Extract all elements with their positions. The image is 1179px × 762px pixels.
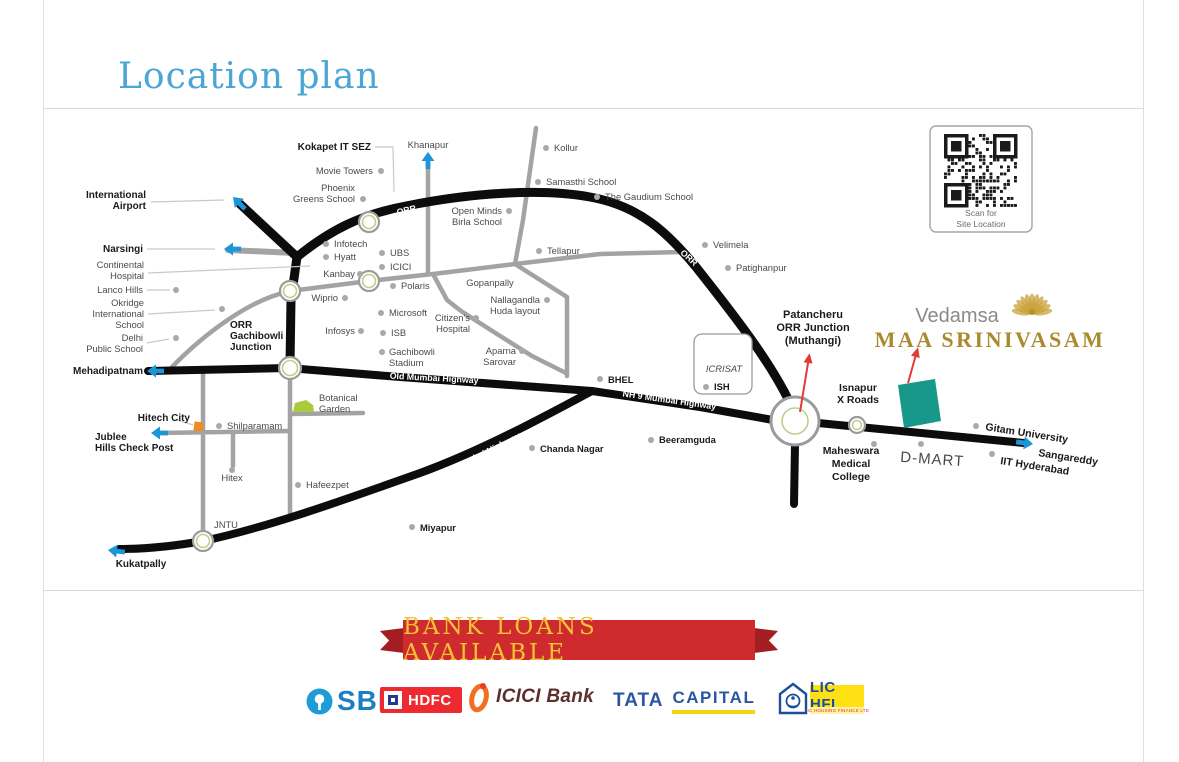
leader-line bbox=[151, 200, 224, 202]
qr-module bbox=[955, 162, 958, 165]
place-label-isnapur: IsnapurX Roads bbox=[837, 382, 879, 406]
tata-capital-label: CAPITAL bbox=[672, 688, 755, 708]
place-dot-shilparamam bbox=[216, 423, 222, 429]
place-label-movie-towers: Movie Towers bbox=[316, 165, 373, 176]
place-label-line: Kokapet IT SEZ bbox=[298, 142, 371, 153]
hdfc-emblem-icon bbox=[384, 691, 402, 709]
qr-module bbox=[990, 190, 993, 193]
place-dot-nallagandla bbox=[544, 297, 550, 303]
qr-module bbox=[993, 159, 996, 162]
place-label-line: Gopanpally bbox=[466, 277, 514, 288]
qr-module bbox=[986, 166, 989, 169]
qr-finder-core bbox=[951, 190, 962, 201]
qr-module bbox=[983, 187, 986, 190]
place-label-beeramguda: Beeramguda bbox=[659, 434, 717, 445]
place-label-international: InternationalAirport bbox=[86, 190, 147, 212]
place-label-shilparamam: Shilparamam bbox=[227, 420, 282, 431]
place-label-d-mart: D-MART bbox=[900, 449, 965, 470]
place-label-line: Junction bbox=[230, 342, 272, 353]
jublee-hills-arrow bbox=[151, 427, 168, 440]
qr-module bbox=[986, 204, 989, 207]
place-label-line: College bbox=[832, 471, 870, 483]
place-dot-gachibowli bbox=[379, 349, 385, 355]
qr-module bbox=[972, 166, 975, 169]
qr-module bbox=[983, 138, 986, 141]
qr-module bbox=[962, 180, 965, 183]
place-label-line: Hafeezpet bbox=[306, 479, 349, 490]
place-label-infosys: Infosys bbox=[325, 325, 355, 336]
qr-module bbox=[972, 176, 975, 179]
place-label-line: Mehadipatnam bbox=[73, 366, 143, 377]
place-label-line: The Gaudium School bbox=[605, 191, 693, 202]
patancheru-junction-pointer-head bbox=[804, 353, 813, 364]
qr-module bbox=[969, 162, 972, 165]
place-dot-isb bbox=[380, 330, 386, 336]
qr-module bbox=[969, 197, 972, 200]
place-label-line: Lanco Hills bbox=[97, 284, 143, 295]
qr-module bbox=[1000, 197, 1003, 200]
place-label-line: UBS bbox=[390, 247, 409, 258]
qr-module bbox=[969, 194, 972, 197]
icici-swirl-icon bbox=[466, 681, 492, 713]
qr-module bbox=[958, 159, 961, 162]
qr-module bbox=[1000, 166, 1003, 169]
qr-module bbox=[979, 176, 982, 179]
hdfc-label: HDFC bbox=[408, 692, 452, 709]
place-label-line: Hospital bbox=[110, 270, 144, 281]
qr-module bbox=[990, 173, 993, 176]
place-label-icici: ICICI bbox=[390, 261, 411, 272]
place-label-line: Microsoft bbox=[389, 307, 427, 318]
place-dot-samasthi-school bbox=[535, 179, 541, 185]
qr-module bbox=[986, 194, 989, 197]
place-label-line: Airport bbox=[113, 201, 147, 212]
place-label-line: Okridge bbox=[111, 297, 144, 308]
place-label-tellapur: Tellapur bbox=[547, 245, 580, 256]
qr-module bbox=[993, 204, 996, 207]
qr-module bbox=[972, 155, 975, 158]
place-label-open-minds: Open MindsBirla School bbox=[451, 205, 502, 227]
qr-module bbox=[969, 169, 972, 172]
qr-module bbox=[972, 138, 975, 141]
qr-module bbox=[976, 204, 979, 207]
qr-module bbox=[1004, 173, 1007, 176]
qr-module bbox=[1007, 204, 1010, 207]
qr-module bbox=[990, 141, 993, 144]
qr-module bbox=[986, 169, 989, 172]
qr-finder-core bbox=[1000, 141, 1011, 152]
place-label-jntu: JNTU bbox=[214, 519, 238, 530]
place-label-line: Sarovar bbox=[483, 356, 516, 367]
qr-module bbox=[1014, 166, 1017, 169]
place-label-wiprio: Wiprio bbox=[311, 292, 338, 303]
qr-module bbox=[983, 197, 986, 200]
qr-module bbox=[969, 183, 972, 186]
place-label-line: X Roads bbox=[837, 394, 879, 406]
qr-module bbox=[976, 152, 979, 155]
place-dot-aparna bbox=[519, 348, 525, 354]
place-label-chanda-nagar: Chanda Nagar bbox=[540, 443, 604, 454]
place-label-line: ICRISAT bbox=[706, 363, 744, 374]
qr-module bbox=[997, 159, 1000, 162]
place-label-polaris: Polaris bbox=[401, 280, 430, 291]
place-dot-kanbay bbox=[357, 271, 363, 277]
qr-module bbox=[1014, 180, 1017, 183]
place-label-line: Jublee bbox=[95, 432, 127, 443]
bank-loans-ribbon-text: BANK LOANS AVAILABLE bbox=[403, 614, 755, 666]
place-label-line: Greens School bbox=[293, 193, 355, 204]
place-label-line: Infotech bbox=[334, 238, 367, 249]
qr-module bbox=[983, 194, 986, 197]
place-label-maheswara: MaheswaraMedicalCollege bbox=[823, 445, 880, 483]
place-label-microsoft: Microsoft bbox=[389, 307, 427, 318]
qr-module bbox=[979, 159, 982, 162]
narsingi-arrow bbox=[224, 243, 241, 256]
place-label-line: Shilparamam bbox=[227, 420, 282, 431]
qr-module bbox=[951, 162, 954, 165]
qr-module bbox=[979, 201, 982, 204]
leader-line bbox=[148, 310, 215, 314]
qr-module bbox=[944, 173, 947, 176]
place-dot-open-minds bbox=[506, 208, 512, 214]
place-dot-polaris bbox=[390, 283, 396, 289]
place-label-line: Huda layout bbox=[490, 305, 540, 316]
qr-module bbox=[976, 201, 979, 204]
qr-module bbox=[979, 180, 982, 183]
qr-module bbox=[944, 176, 947, 179]
place-label-line: Hyatt bbox=[334, 251, 356, 262]
place-label-okridge: OkridgeInternationalSchool bbox=[92, 297, 144, 330]
qr-module bbox=[990, 197, 993, 200]
qr-module bbox=[990, 176, 993, 179]
place-label-line: Nallagandla bbox=[490, 294, 540, 305]
qr-module bbox=[1000, 190, 1003, 193]
place-label-line: Polaris bbox=[401, 280, 430, 291]
place-label-line: Hospital bbox=[436, 323, 470, 334]
qr-module bbox=[948, 173, 951, 176]
qr-module bbox=[976, 187, 979, 190]
place-dot-bhel bbox=[597, 376, 603, 382]
place-label-line: Gachibowli bbox=[389, 346, 435, 357]
qr-module bbox=[993, 187, 996, 190]
place-label-line: Gachibowli bbox=[230, 331, 284, 342]
qr-module bbox=[979, 166, 982, 169]
qr-finder-core bbox=[951, 141, 962, 152]
qr-module bbox=[972, 169, 975, 172]
leader-line bbox=[147, 339, 169, 343]
place-label-line: D-MART bbox=[900, 449, 965, 470]
place-label-narsingi: Narsingi bbox=[103, 244, 143, 255]
road-old-mumbai-highway bbox=[148, 368, 592, 391]
qr-module bbox=[993, 197, 996, 200]
place-dot-d-mart bbox=[918, 441, 924, 447]
qr-module bbox=[983, 173, 986, 176]
place-label-phoenix: PhoenixGreens School bbox=[293, 182, 355, 204]
road-label-nh-9-mumbai-highway: NH 9 Mumbai Highway bbox=[433, 430, 522, 482]
place-label-line: Hitech City bbox=[138, 413, 191, 424]
road-patancheru-south-road bbox=[794, 445, 795, 504]
place-label-line: ORR Junction bbox=[776, 322, 850, 334]
place-label-line: Public School bbox=[86, 343, 143, 354]
place-label-botanical: BotanicalGarden bbox=[319, 392, 358, 414]
qr-module bbox=[965, 176, 968, 179]
place-label-line: Patighanpur bbox=[736, 262, 787, 273]
place-label-line: Narsingi bbox=[103, 244, 143, 255]
brand-name: Vedamsa bbox=[915, 305, 999, 327]
qr-module bbox=[958, 169, 961, 172]
place-label-line: ISB bbox=[391, 327, 406, 338]
place-dot-infotech bbox=[323, 241, 329, 247]
qr-module bbox=[979, 155, 982, 158]
qr-module bbox=[983, 159, 986, 162]
qr-module bbox=[962, 176, 965, 179]
place-label-line: School bbox=[115, 319, 144, 330]
place-label-isb: ISB bbox=[391, 327, 406, 338]
qr-module bbox=[965, 162, 968, 165]
qr-module bbox=[1007, 197, 1010, 200]
place-dot-the-gaudium-school bbox=[594, 194, 600, 200]
place-label-line: Medical bbox=[832, 458, 871, 470]
place-label-kokapet-it-sez: Kokapet IT SEZ bbox=[298, 142, 371, 153]
place-dot-kollur bbox=[543, 145, 549, 151]
qr-module bbox=[976, 183, 979, 186]
qr-caption-line: Site Location bbox=[956, 219, 1005, 229]
qr-module bbox=[997, 180, 1000, 183]
qr-module bbox=[986, 141, 989, 144]
qr-module bbox=[986, 180, 989, 183]
qr-module bbox=[1004, 204, 1007, 207]
place-label-aparna: AparnaSarovar bbox=[483, 345, 517, 367]
place-label-line: Hills Check Post bbox=[95, 443, 174, 454]
place-label-line: Botanical bbox=[319, 392, 358, 403]
icici-label: ICICI Bank bbox=[496, 686, 594, 708]
place-label-hitex: Hitex bbox=[221, 472, 243, 483]
bank-logo-icici: ICICI Bank bbox=[466, 681, 594, 713]
qr-module bbox=[1007, 180, 1010, 183]
qr-module bbox=[965, 169, 968, 172]
qr-module bbox=[993, 190, 996, 193]
qr-module bbox=[1004, 187, 1007, 190]
place-label-delhi: DelhiPublic School bbox=[86, 332, 143, 354]
place-label-line: Miyapur bbox=[420, 522, 456, 533]
qr-module bbox=[1011, 197, 1014, 200]
qr-module bbox=[990, 155, 993, 158]
hdfc-red-box: HDFC bbox=[380, 687, 462, 713]
place-dot-lanco-hills bbox=[173, 287, 179, 293]
project-name: MAA SRINIVASAM bbox=[875, 327, 1106, 352]
place-label-hyatt: Hyatt bbox=[334, 251, 356, 262]
place-dot-tellapur bbox=[536, 248, 542, 254]
qr-module bbox=[976, 190, 979, 193]
place-label-line: Khanapur bbox=[408, 139, 449, 150]
qr-module bbox=[979, 152, 982, 155]
place-dot-citizen-s bbox=[473, 315, 479, 321]
project-site-block bbox=[898, 379, 941, 428]
tata-capital-underline bbox=[672, 710, 755, 714]
place-label-patighanpur: Patighanpur bbox=[736, 262, 787, 273]
place-dot-velimela bbox=[702, 242, 708, 248]
place-label-the-gaudium-school: The Gaudium School bbox=[605, 191, 693, 202]
place-label-line: Kanbay bbox=[323, 268, 355, 279]
place-label-samasthi-school: Samasthi School bbox=[546, 176, 616, 187]
place-label-line: ISH bbox=[714, 381, 730, 392]
mehadipatnam-arrow bbox=[147, 365, 164, 378]
lic-house-icon bbox=[778, 682, 808, 716]
qr-module bbox=[969, 187, 972, 190]
place-label-line: Kukatpally bbox=[116, 559, 167, 570]
place-label-line: Tellapur bbox=[547, 245, 580, 256]
qr-module bbox=[969, 155, 972, 158]
qr-module bbox=[983, 155, 986, 158]
place-label-khanapur: Khanapur bbox=[408, 139, 449, 150]
place-label-line: Samasthi School bbox=[546, 176, 616, 187]
place-label-line: International bbox=[86, 190, 146, 201]
qr-module bbox=[969, 190, 972, 193]
place-dot-ubs bbox=[379, 250, 385, 256]
qr-module bbox=[986, 138, 989, 141]
place-label-line: Velimela bbox=[713, 239, 749, 250]
qr-module bbox=[990, 194, 993, 197]
qr-module bbox=[993, 201, 996, 204]
place-label-citizen-s: Citizen'sHospital bbox=[435, 312, 470, 334]
place-dot bbox=[871, 441, 877, 447]
place-label-miyapur: Miyapur bbox=[420, 522, 456, 533]
qr-module bbox=[1007, 166, 1010, 169]
qr-module bbox=[1007, 169, 1010, 172]
place-label-line: Chanda Nagar bbox=[540, 443, 604, 454]
lotus-center bbox=[1029, 309, 1035, 315]
place-label-velimela: Velimela bbox=[713, 239, 749, 250]
leader-line bbox=[375, 147, 394, 192]
qr-module bbox=[986, 197, 989, 200]
qr-caption-line: Scan for bbox=[965, 208, 997, 218]
place-label-line: Citizen's bbox=[435, 312, 470, 323]
place-label-icrisat: ICRISAT bbox=[706, 363, 744, 374]
qr-module bbox=[972, 145, 975, 148]
place-label-patancheru: PatancheruORR Junction(Muthangi) bbox=[776, 309, 850, 347]
place-label-line: Infosys bbox=[325, 325, 355, 336]
hitech-city-marker bbox=[193, 421, 203, 431]
place-label-line: Delhi bbox=[122, 332, 143, 343]
qr-module bbox=[990, 162, 993, 165]
place-label-infotech: Infotech bbox=[334, 238, 367, 249]
place-label-line: Patancheru bbox=[783, 309, 843, 321]
place-label-line: Maheswara bbox=[823, 445, 880, 457]
qr-module bbox=[986, 148, 989, 151]
bank-logo-sbi: SBI bbox=[306, 685, 387, 717]
qr-module bbox=[986, 190, 989, 193]
place-label-line: Kollur bbox=[554, 142, 578, 153]
place-dot-beeramguda bbox=[648, 437, 654, 443]
qr-module bbox=[951, 169, 954, 172]
lic-hfl-caption: LIC HOUSING FINANCE LTD bbox=[810, 707, 864, 714]
place-label-line: Stadium bbox=[389, 357, 424, 368]
botanical-garden-area bbox=[293, 400, 314, 412]
place-label-line: Continental bbox=[97, 259, 144, 270]
qr-module bbox=[976, 197, 979, 200]
qr-module bbox=[1011, 159, 1014, 162]
qr-module bbox=[969, 145, 972, 148]
bank-logo-tata-capital: TATA CAPITAL bbox=[613, 688, 755, 714]
qr-module bbox=[1004, 159, 1007, 162]
junction-circle bbox=[771, 397, 819, 445]
qr-module bbox=[1000, 173, 1003, 176]
place-label-line: Movie Towers bbox=[316, 165, 373, 176]
place-label-kukatpally: Kukatpally bbox=[116, 559, 167, 570]
lotus-icon bbox=[1011, 293, 1052, 316]
bank-logo-hdfc: HDFC bbox=[380, 687, 462, 713]
qr-module bbox=[962, 166, 965, 169]
place-dot-wiprio bbox=[342, 295, 348, 301]
place-dot-chanda-nagar bbox=[529, 445, 535, 451]
sbi-keyhole-icon bbox=[306, 688, 333, 715]
place-label-lanco-hills: Lanco Hills bbox=[97, 284, 143, 295]
place-dot-gitam-university bbox=[973, 423, 979, 429]
place-label-line: (Muthangi) bbox=[785, 335, 842, 347]
khanapur-arrow bbox=[422, 152, 435, 169]
place-label-orr: ORRGachibowliJunction bbox=[230, 320, 284, 353]
place-label-ish: ISH bbox=[714, 381, 730, 392]
place-label-continental: ContinentalHospital bbox=[97, 259, 144, 281]
place-label-gopanpally: Gopanpally bbox=[466, 277, 514, 288]
place-dot-hyatt bbox=[323, 254, 329, 260]
qr-module bbox=[979, 183, 982, 186]
qr-module bbox=[997, 176, 1000, 179]
place-label-kollur: Kollur bbox=[554, 142, 578, 153]
place-dot-miyapur bbox=[409, 524, 415, 530]
place-dot-microsoft bbox=[378, 310, 384, 316]
place-dot-phoenix bbox=[360, 196, 366, 202]
qr-module bbox=[1011, 204, 1014, 207]
place-label-line: ORR bbox=[230, 320, 253, 331]
place-dot-delhi bbox=[173, 335, 179, 341]
qr-module bbox=[976, 148, 979, 151]
qr-module bbox=[983, 134, 986, 137]
qr-module bbox=[990, 180, 993, 183]
junction-circle bbox=[849, 417, 865, 433]
qr-module bbox=[983, 176, 986, 179]
lic-yellow-box: LIC HFL bbox=[810, 685, 864, 707]
place-label-hitech-city: Hitech City bbox=[138, 413, 191, 424]
qr-module bbox=[983, 180, 986, 183]
qr-module bbox=[993, 180, 996, 183]
qr-module bbox=[972, 197, 975, 200]
qr-module bbox=[948, 159, 951, 162]
qr-module bbox=[979, 134, 982, 137]
qr-module bbox=[1000, 204, 1003, 207]
qr-module bbox=[948, 169, 951, 172]
place-label-line: Hitex bbox=[221, 472, 243, 483]
place-dot-iit-hyderabad bbox=[989, 451, 995, 457]
place-label-line: Beeramguda bbox=[659, 434, 717, 445]
place-label-mehadipatnam: Mehadipatnam bbox=[73, 366, 143, 377]
road-jublee-road bbox=[158, 431, 290, 433]
place-dot-icici bbox=[379, 264, 385, 270]
bank-loans-ribbon: BANK LOANS AVAILABLE bbox=[403, 620, 755, 660]
place-label-line: Wiprio bbox=[311, 292, 338, 303]
place-label-line: Garden bbox=[319, 403, 350, 414]
qr-module bbox=[1014, 176, 1017, 179]
qr-module bbox=[965, 173, 968, 176]
tata-label: TATA bbox=[613, 690, 663, 712]
qr-module bbox=[1014, 162, 1017, 165]
place-label-line: ICICI bbox=[390, 261, 411, 272]
place-label-kanbay: Kanbay bbox=[323, 268, 355, 279]
place-dot-movie-towers bbox=[378, 168, 384, 174]
qr-module bbox=[972, 194, 975, 197]
place-dot-ish bbox=[703, 384, 709, 390]
place-label-line: JNTU bbox=[214, 519, 238, 530]
